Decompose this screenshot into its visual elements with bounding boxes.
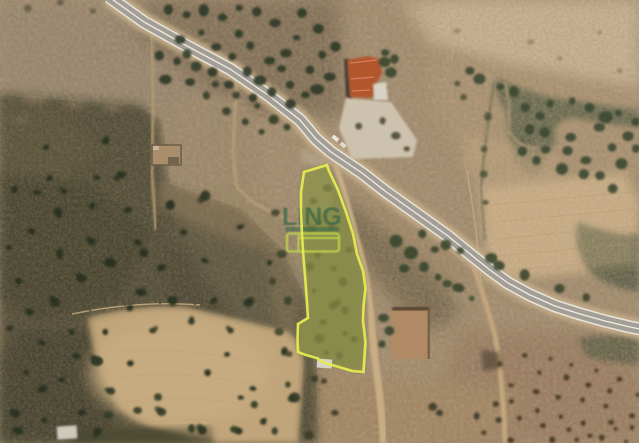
- svg-text:LING: LING: [282, 203, 342, 231]
